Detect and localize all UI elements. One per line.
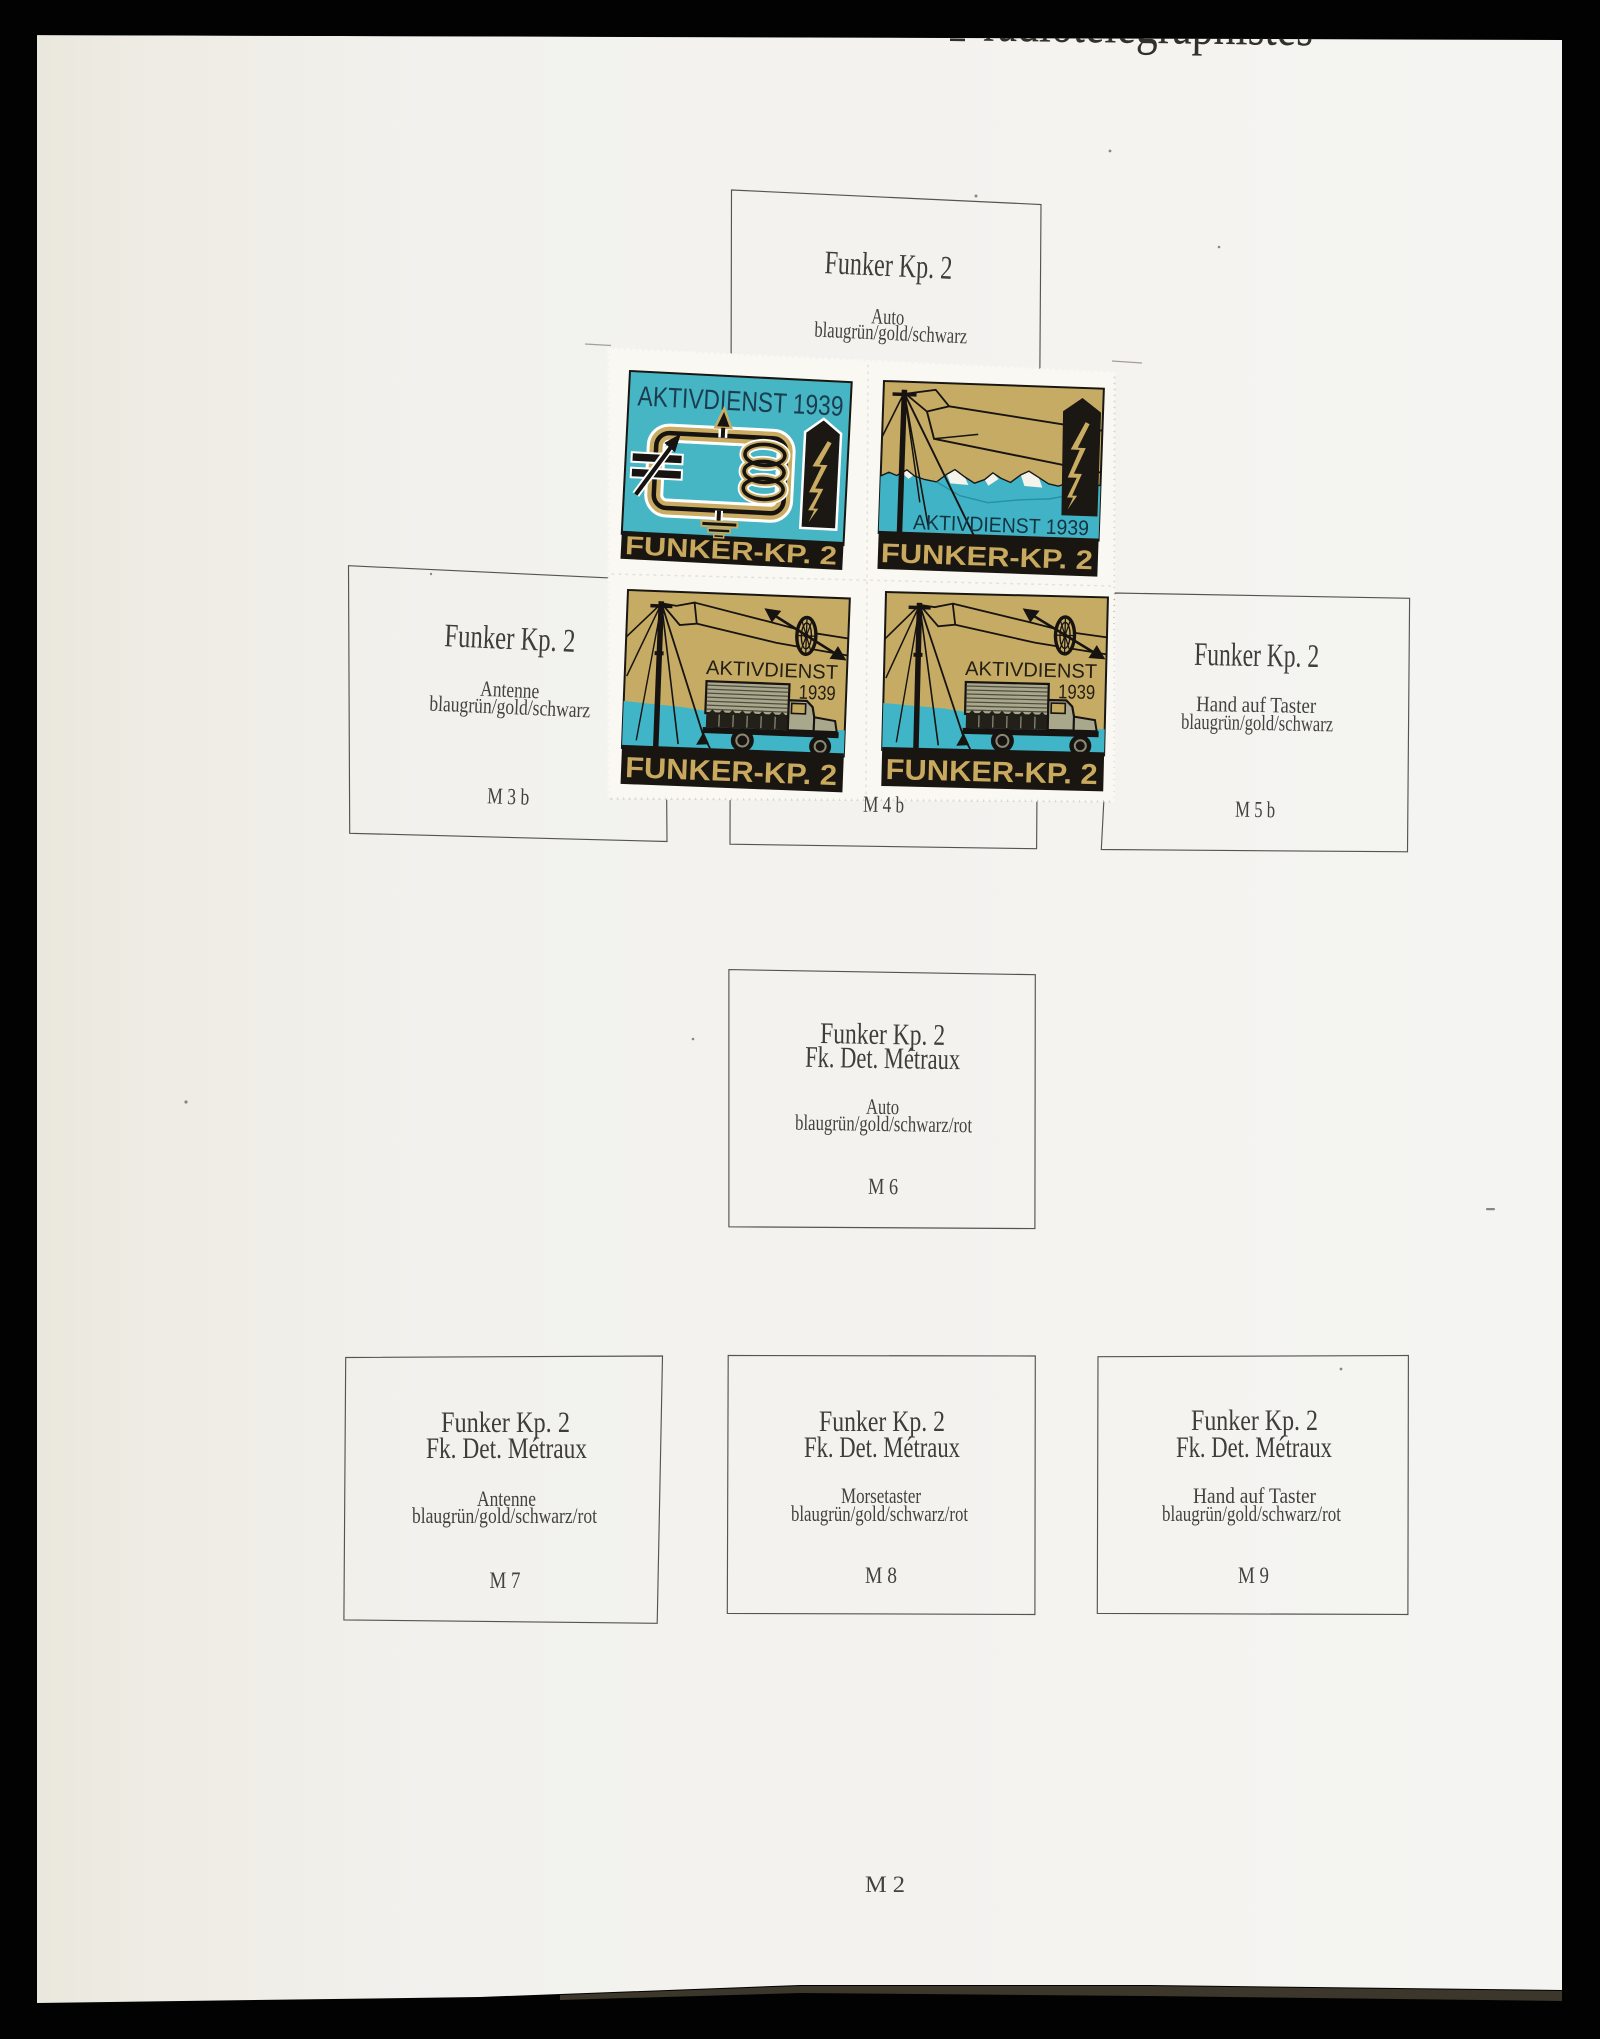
svg-text:blaugrün/gold/schwarz: blaugrün/gold/schwarz [1181,709,1334,737]
svg-text:blaugrün/gold/schwarz/rot: blaugrün/gold/schwarz/rot [791,1501,968,1526]
svg-text:blaugrün/gold/schwarz/rot: blaugrün/gold/schwarz/rot [1162,1501,1341,1526]
svg-text:M 6: M 6 [868,1174,898,1199]
svg-text:Fk. Det. Métraux: Fk. Det. Métraux [804,1431,960,1464]
svg-text:Funker Kp. 2: Funker Kp. 2 [824,245,954,287]
svg-text:Funker Kp. 2: Funker Kp. 2 [1194,637,1320,675]
svg-text:Fk. Det. Métraux: Fk. Det. Métraux [1176,1431,1332,1464]
svg-text:M 9: M 9 [1238,1563,1269,1588]
svg-text:M 4 b: M 4 b [863,792,905,818]
svg-text:Fk. Det. Métraux: Fk. Det. Métraux [805,1041,960,1076]
svg-text:M 2: M 2 [865,1872,905,1897]
svg-text:Fk. Det. Métraux: Fk. Det. Métraux [426,1432,587,1465]
svg-text:M 7: M 7 [490,1568,521,1593]
svg-text:M 8: M 8 [865,1563,897,1588]
svg-text:blaugrün/gold/schwarz/rot: blaugrün/gold/schwarz/rot [412,1503,597,1528]
svg-text:M 3 b: M 3 b [487,783,530,809]
svg-text:Funker Kp. 2: Funker Kp. 2 [444,618,576,660]
svg-text:blaugrün/gold/schwarz/rot: blaugrün/gold/schwarz/rot [795,1110,972,1138]
svg-text:M 5 b: M 5 b [1235,797,1275,823]
